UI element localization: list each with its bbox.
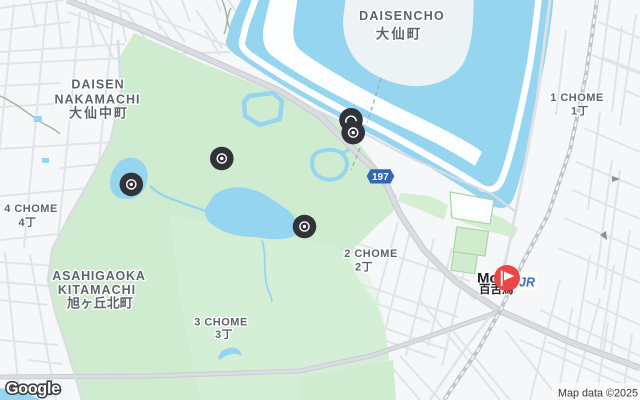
svg-text:DAISEN: DAISEN xyxy=(71,78,124,92)
svg-text:3 CHOME: 3 CHOME xyxy=(194,317,248,329)
svg-text:Map data ©2025: Map data ©2025 xyxy=(558,388,638,400)
svg-text:DAISENCHO: DAISENCHO xyxy=(359,9,445,23)
svg-text:4 CHOME: 4 CHOME xyxy=(4,203,58,215)
svg-text:3丁: 3丁 xyxy=(215,328,233,341)
svg-text:4丁: 4丁 xyxy=(18,216,36,229)
svg-text:大仙町: 大仙町 xyxy=(376,26,423,42)
svg-text:197: 197 xyxy=(372,172,389,183)
svg-text:2 CHOME: 2 CHOME xyxy=(344,248,398,260)
svg-text:JR: JR xyxy=(519,276,535,290)
svg-text:旭ヶ丘北町: 旭ヶ丘北町 xyxy=(66,296,133,311)
svg-text:2丁: 2丁 xyxy=(355,261,373,274)
svg-text:大仙中町: 大仙中町 xyxy=(69,106,129,121)
svg-text:NAKAMACHI: NAKAMACHI xyxy=(54,93,140,107)
svg-text:ASAHIGAOKA: ASAHIGAOKA xyxy=(52,269,145,283)
svg-text:1 CHOME: 1 CHOME xyxy=(550,92,604,104)
svg-text:Google: Google xyxy=(6,381,60,398)
svg-text:1丁: 1丁 xyxy=(571,105,589,118)
